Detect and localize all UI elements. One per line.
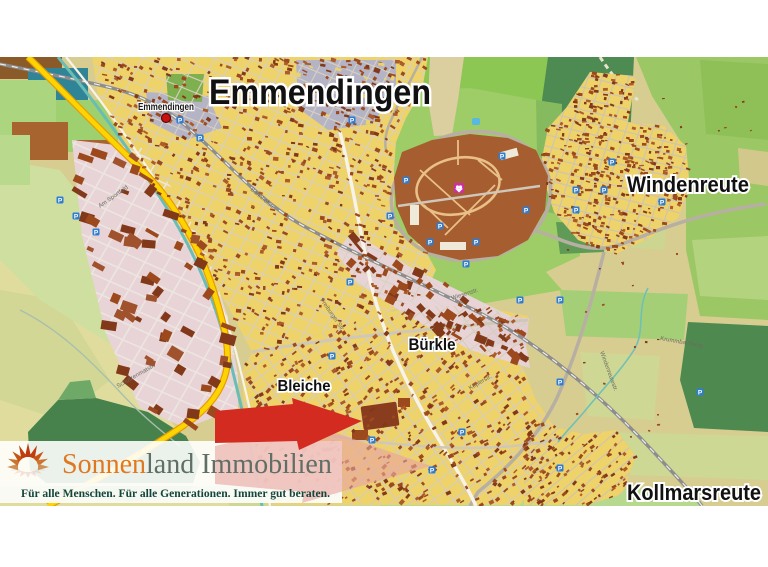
svg-text:Sonnenland Immobilien: Sonnenland Immobilien: [62, 449, 332, 480]
svg-text:P: P: [58, 198, 63, 205]
svg-text:P: P: [460, 430, 465, 437]
svg-text:P: P: [330, 354, 335, 361]
svg-text:P: P: [574, 208, 579, 215]
svg-text:P: P: [430, 468, 435, 475]
svg-text:Für alle Menschen. Für alle Ge: Für alle Menschen. Für alle Generationen…: [21, 488, 330, 500]
svg-text:P: P: [610, 160, 615, 167]
svg-text:P: P: [404, 178, 409, 185]
svg-text:Emmendingen: Emmendingen: [209, 73, 431, 112]
svg-text:Bürkle: Bürkle: [409, 335, 456, 354]
svg-text:P: P: [558, 466, 563, 473]
svg-text:P: P: [74, 214, 79, 221]
svg-text:P: P: [500, 154, 505, 161]
svg-text:P: P: [574, 188, 579, 195]
svg-text:Kollmarsreute: Kollmarsreute: [627, 480, 761, 505]
svg-text:P: P: [348, 280, 353, 287]
svg-text:P: P: [558, 298, 563, 305]
svg-text:Emmendingen: Emmendingen: [138, 102, 194, 113]
svg-text:P: P: [198, 136, 203, 143]
svg-text:P: P: [370, 438, 375, 445]
svg-text:P: P: [518, 298, 523, 305]
svg-text:P: P: [660, 200, 665, 207]
svg-text:P: P: [438, 224, 443, 231]
svg-text:P: P: [350, 118, 355, 125]
svg-text:P: P: [464, 262, 469, 269]
svg-text:P: P: [474, 240, 479, 247]
svg-text:P: P: [94, 230, 99, 237]
svg-text:P: P: [178, 118, 183, 125]
svg-text:P: P: [698, 390, 703, 397]
svg-text:P: P: [428, 240, 433, 247]
svg-text:P: P: [558, 380, 563, 387]
svg-text:P: P: [602, 188, 607, 195]
svg-text:P: P: [524, 208, 529, 215]
svg-text:Windenreute: Windenreute: [627, 172, 749, 197]
svg-text:P: P: [388, 214, 393, 221]
svg-text:Bleiche: Bleiche: [278, 378, 331, 395]
